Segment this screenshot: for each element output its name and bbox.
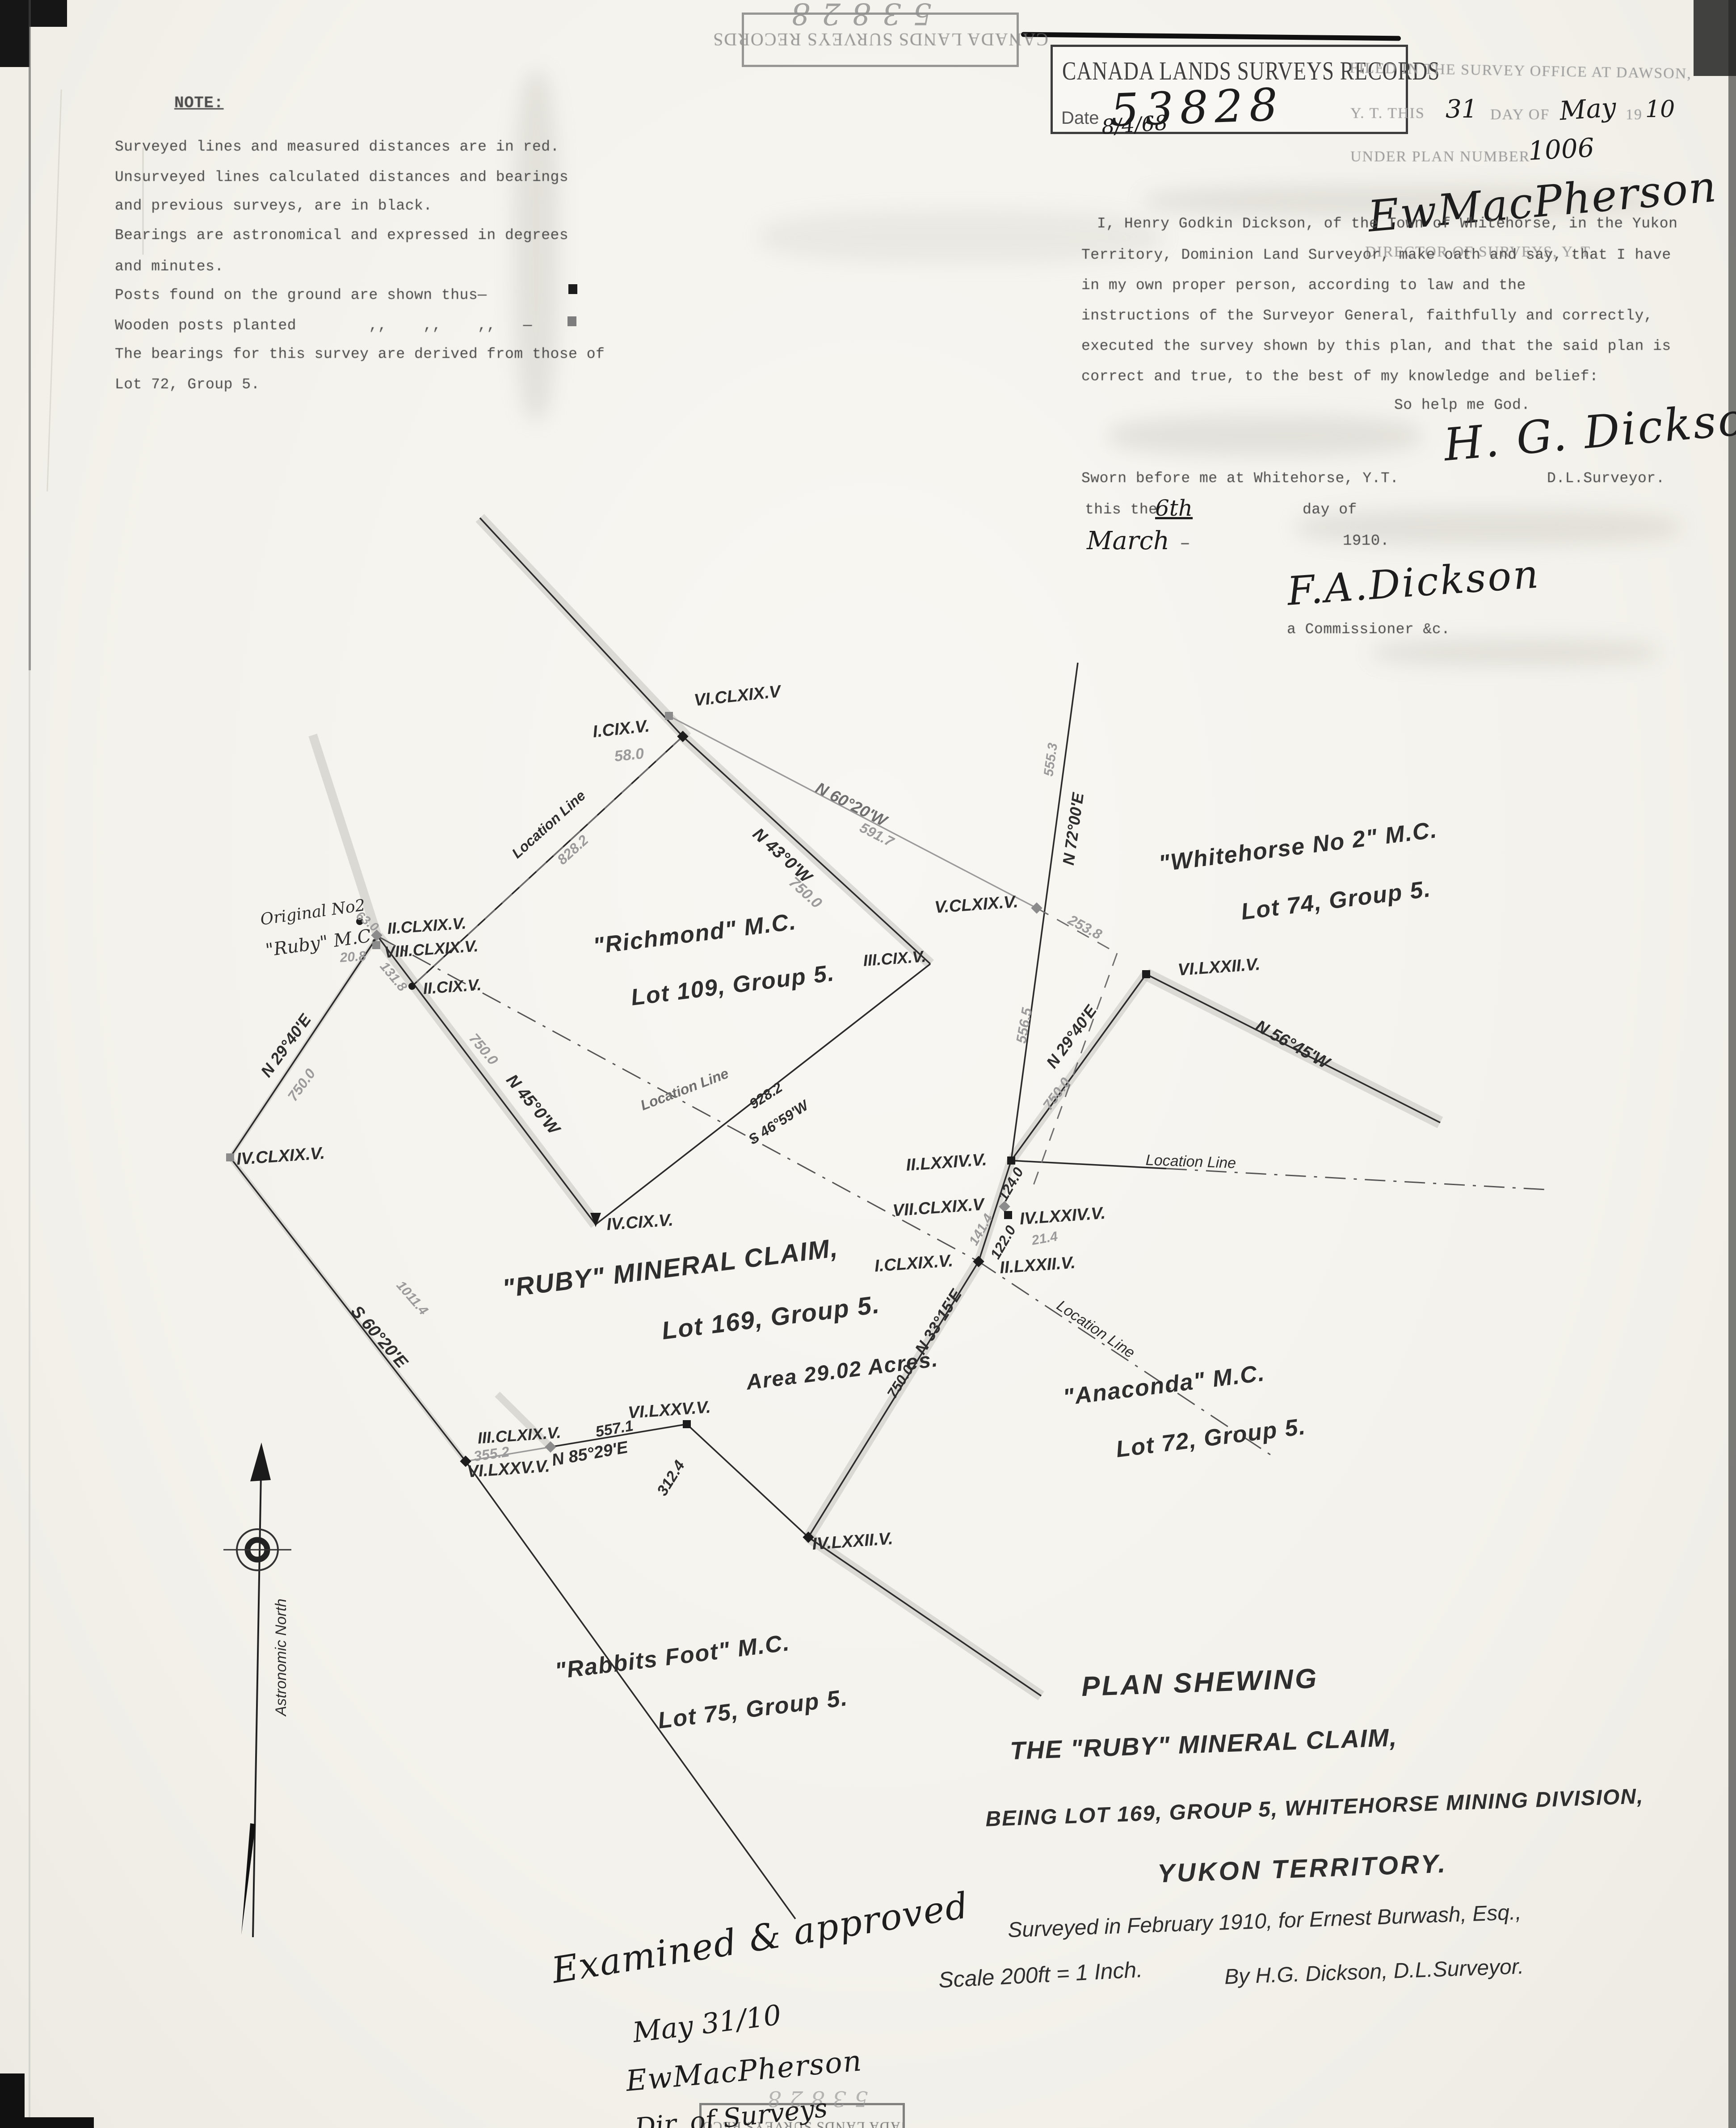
survey-post-marker xyxy=(226,1153,234,1161)
survey-post-marker xyxy=(1007,1157,1015,1165)
survey-post-marker xyxy=(1031,902,1042,913)
boundary-line xyxy=(230,1157,466,1461)
survey-post-marker xyxy=(1142,970,1150,978)
survey-post-marker xyxy=(408,983,416,990)
boundary-line xyxy=(378,936,596,1224)
scanned-survey-plan-sheet: CANADA LANDS SURVEYS RECORDS 53828 CANAD… xyxy=(0,0,1736,2128)
boundary-line xyxy=(687,1424,808,1537)
plan-annotation-label: 58.0 xyxy=(614,745,645,765)
boundary-line xyxy=(808,1537,1041,1696)
boundary-line xyxy=(230,936,378,1157)
boundary-line xyxy=(466,1461,795,1919)
survey-post-marker xyxy=(665,712,673,720)
survey-post-marker xyxy=(683,1420,691,1428)
dashed-tie-line xyxy=(1032,953,1117,1189)
plan-annotation-label: 20.8 xyxy=(340,949,367,966)
plan-annotation-label: Location Line xyxy=(1145,1152,1236,1172)
north-arrow-label: Astronomic North xyxy=(273,1598,290,1716)
boundary-line xyxy=(1011,1161,1166,1169)
survey-post-marker xyxy=(1004,1211,1012,1219)
boundary-line xyxy=(480,518,683,736)
boundary-line xyxy=(1011,974,1146,1161)
